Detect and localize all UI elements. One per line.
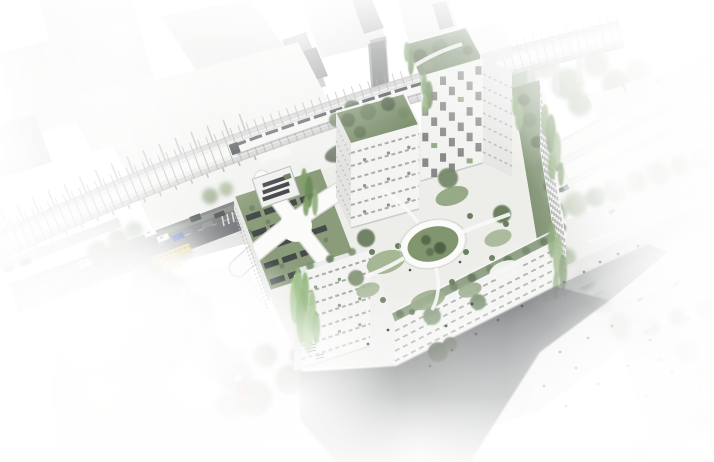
architectural-aerial-rendering: [0, 0, 714, 462]
rendering-canvas: [0, 0, 714, 462]
